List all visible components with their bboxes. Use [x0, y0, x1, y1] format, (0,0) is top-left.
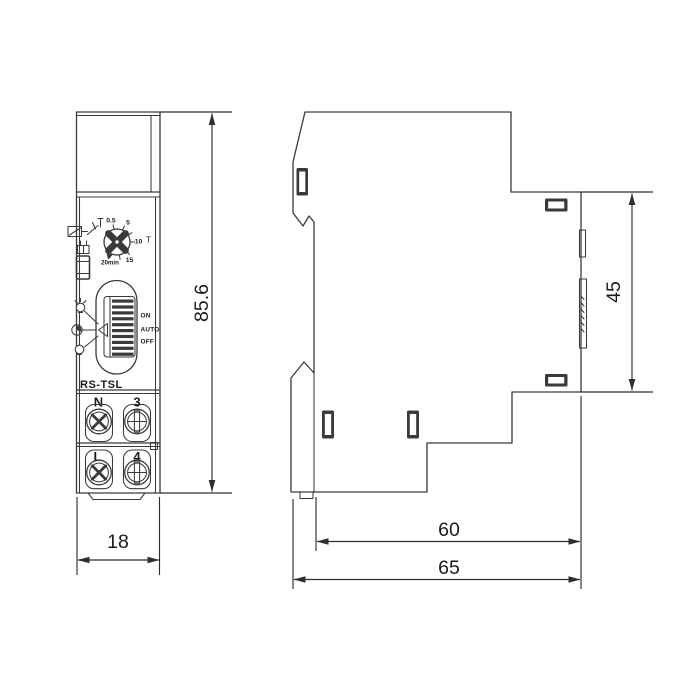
- mid-vent-slot-left: [322, 411, 334, 439]
- terminal-label-l: L: [94, 449, 102, 464]
- device-side-outline: [291, 112, 581, 492]
- din-clip-tab[interactable]: [300, 492, 313, 499]
- front-view: 0.5 5 10 T 15 20min: [68, 112, 160, 500]
- slider-ridges: [112, 300, 134, 356]
- front-vent-slot-bottom: [545, 374, 568, 387]
- model-label: RS-TSL: [80, 379, 123, 391]
- terminal-row-1: N 3: [86, 395, 151, 442]
- terminal-screw-3[interactable]: [125, 409, 150, 434]
- dial-label-15: 15: [126, 257, 134, 264]
- technical-drawing-timer-relay: 0.5 5 10 T 15 20min: [0, 0, 700, 700]
- mode-switch: ON AUTO OFF: [72, 281, 160, 375]
- terminal-row-2: L 4: [86, 449, 151, 489]
- terminal-label-n: N: [94, 395, 103, 410]
- dim-width: 18: [77, 497, 160, 575]
- dim-value-front-depth: 45: [603, 281, 625, 303]
- bottom-recess: [88, 493, 145, 500]
- top-vent-slot: [297, 168, 309, 196]
- dial-label-5: 5: [126, 220, 130, 227]
- dim-front-depth: 45: [581, 192, 653, 392]
- dim-height: 85.6: [160, 112, 232, 493]
- dim-value-total-depth: 65: [438, 557, 460, 579]
- switch-label-auto: AUTO: [141, 327, 160, 334]
- terminal-label-3: 3: [133, 395, 140, 410]
- position-pointer-icon: [99, 324, 108, 337]
- dial-knob-center: [115, 240, 118, 243]
- dim-body-depth: 60: [316, 497, 580, 551]
- dim-value-height: 85.6: [191, 284, 213, 322]
- dial-unit-label: T: [146, 235, 151, 245]
- dim-value-width: 18: [107, 531, 129, 553]
- drawing-canvas: 0.5 5 10 T 15 20min: [0, 0, 700, 700]
- fuse-icon: [77, 241, 90, 279]
- switch-label-on: ON: [141, 313, 151, 320]
- dial-label-05: 0.5: [106, 218, 116, 225]
- timer-dial: 0.5 5 10 T 15 20min: [101, 218, 151, 267]
- side-view: [291, 112, 587, 499]
- lamp-off-icon: [75, 345, 84, 354]
- dial-label-20min: 20min: [101, 260, 119, 267]
- terminal-screw-n[interactable]: [87, 409, 112, 434]
- front-vent-slot-top: [545, 199, 568, 212]
- dial-label-10: 10: [135, 239, 143, 246]
- timer-contact-icon: [68, 219, 103, 237]
- mid-vent-slot-right: [407, 411, 419, 439]
- switch-label-off: OFF: [141, 339, 155, 346]
- dim-value-body-depth: 60: [438, 519, 460, 541]
